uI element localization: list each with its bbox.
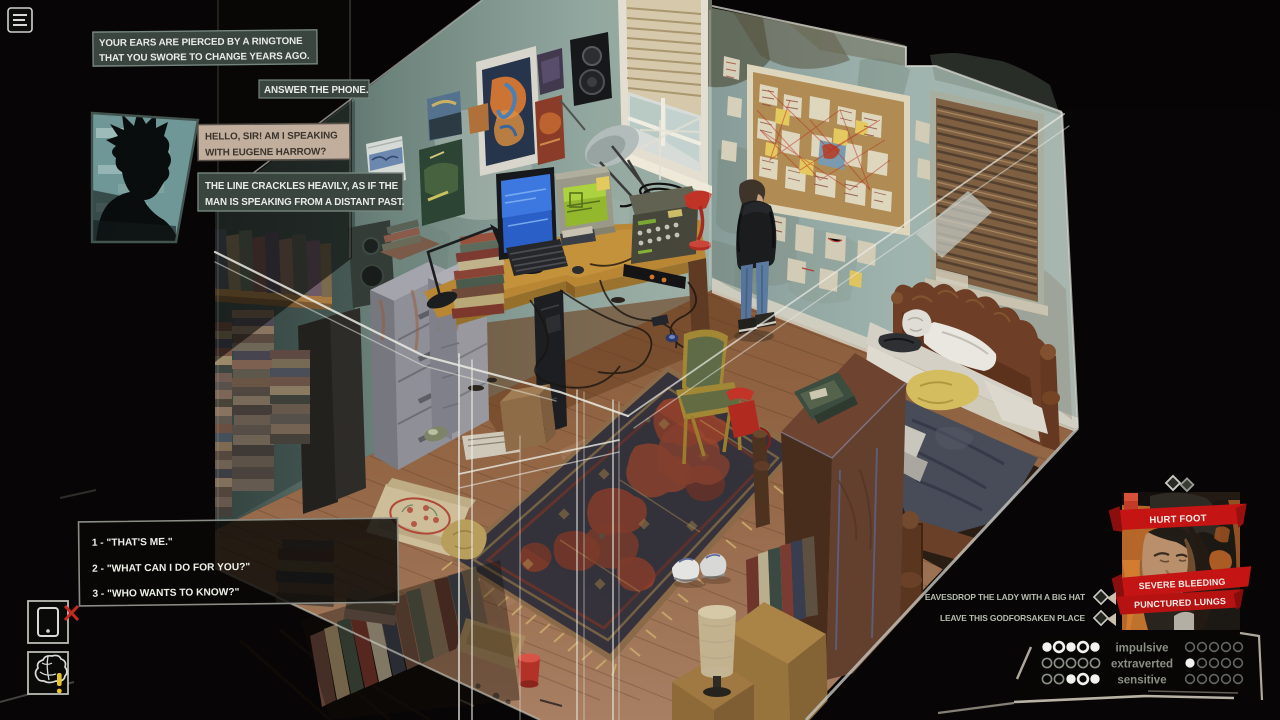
svg-text:sensitive: sensitive <box>1117 675 1166 687</box>
svg-text:2 - "WHAT CAN I DO FOR YOU?": 2 - "WHAT CAN I DO FOR YOU?" <box>92 562 250 575</box>
svg-text:HELLO, SIR! AM I SPEAKING: HELLO, SIR! AM I SPEAKING <box>205 130 338 142</box>
svg-text:THE LINE CRACKLES HEAVILY, AS: THE LINE CRACKLES HEAVILY, AS IF THE <box>205 181 399 192</box>
svg-text:MAN IS SPEAKING FROM A DISTANT: MAN IS SPEAKING FROM A DISTANT PAST. <box>205 197 405 208</box>
svg-text:THAT YOU SWORE TO CHANGE YEARS: THAT YOU SWORE TO CHANGE YEARS AGO. <box>99 51 310 64</box>
svg-text:3 - "WHO WANTS TO KNOW?": 3 - "WHO WANTS TO KNOW?" <box>92 587 239 600</box>
svg-text:YOUR EARS ARE PIERCED BY A RIN: YOUR EARS ARE PIERCED BY A RINGTONE <box>99 36 303 49</box>
svg-text:LEAVE THIS GODFORSAKEN PLACE: LEAVE THIS GODFORSAKEN PLACE <box>940 613 1086 623</box>
svg-text:impulsive: impulsive <box>1115 643 1168 655</box>
svg-text:extraverted: extraverted <box>1111 659 1173 671</box>
svg-text:HURT FOOT: HURT FOOT <box>1149 513 1207 526</box>
svg-text:1 - "THAT'S ME.": 1 - "THAT'S ME." <box>92 537 173 549</box>
svg-text:WITH EUGENE HARROW?: WITH EUGENE HARROW? <box>205 147 326 159</box>
svg-text:ANSWER THE PHONE.: ANSWER THE PHONE. <box>264 85 369 96</box>
svg-text:EAVESDROP THE LADY WITH A BIG: EAVESDROP THE LADY WITH A BIG HAT <box>925 592 1086 602</box>
